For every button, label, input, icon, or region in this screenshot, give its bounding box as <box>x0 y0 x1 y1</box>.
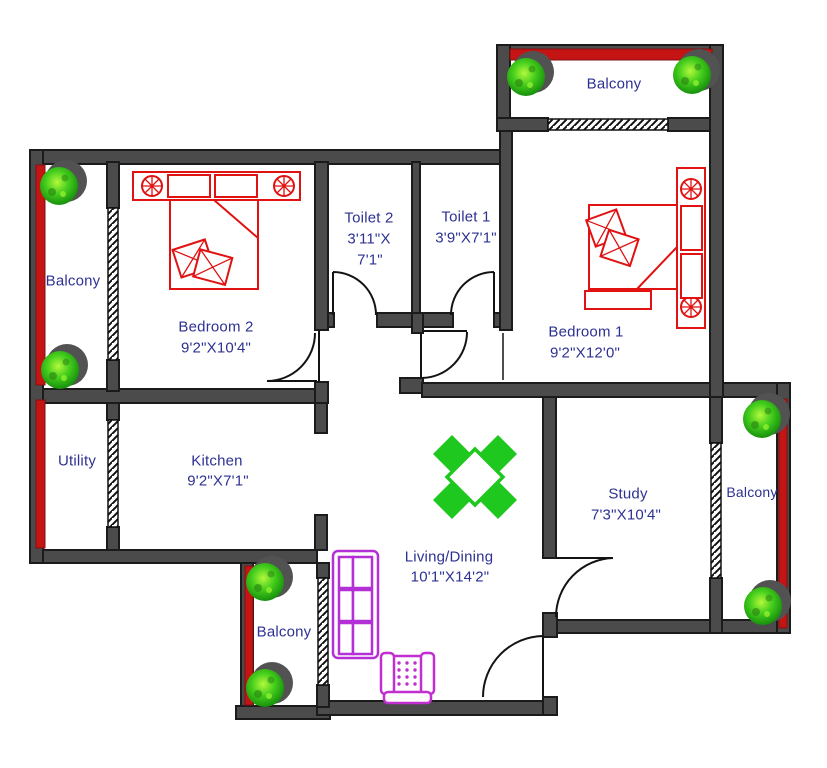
room-label-toilet2: Toilet 2 <box>344 211 393 226</box>
room-label-bedroom2: Bedroom 2 <box>178 320 253 335</box>
room-dims-toilet2-line1: 3'11"X <box>347 232 390 247</box>
room-label-bedroom1: Bedroom 1 <box>548 325 623 340</box>
door-toilet1 <box>451 272 494 315</box>
room-dims-bedroom1: 9'2"X12'0" <box>550 346 620 361</box>
room-dims-toilet2-line2: 7'1" <box>357 253 383 268</box>
window-right-balcony <box>711 443 721 578</box>
armchair-icon <box>381 653 434 703</box>
room-label-balcony-left: Balcony <box>46 274 101 289</box>
door-bedroom2 <box>267 330 319 382</box>
door-toilet2 <box>333 272 376 315</box>
room-dims-study: 7'3"X10'4" <box>591 508 661 523</box>
room-label-balcony-top: Balcony <box>587 77 642 92</box>
wardrobe-icon <box>585 291 651 309</box>
floor-plan-drawing <box>0 0 827 768</box>
room-label-living-dining: Living/Dining <box>405 550 493 565</box>
window-left-balcony <box>108 208 118 360</box>
window-top-balcony <box>548 119 668 130</box>
window-bottom-balcony <box>318 578 328 685</box>
room-dims-bedroom2: 9'2"X10'4" <box>181 341 251 356</box>
room-dims-kitchen: 9'2"X7'1" <box>187 474 249 489</box>
room-label-study: Study <box>608 487 647 502</box>
door-entrance <box>483 636 543 697</box>
room-dims-toilet1: 3'9"X7'1" <box>435 231 497 246</box>
room-label-kitchen: Kitchen <box>191 454 242 469</box>
room-label-toilet1: Toilet 1 <box>441 210 490 225</box>
room-dims-living-dining: 10'1"X14'2" <box>411 570 490 585</box>
door-passage <box>421 331 467 378</box>
tree-icon <box>40 160 87 205</box>
room-label-balcony-right: Balcony <box>726 485 777 499</box>
dining-table-icon <box>433 435 517 519</box>
door-study <box>556 558 613 617</box>
floor-plan: Balcony Balcony Bedroom 2 9'2"X10'4" Toi… <box>0 0 827 768</box>
tree-icon <box>41 344 88 389</box>
bed-icon-bedroom2 <box>133 172 300 289</box>
window-utility <box>108 420 118 527</box>
room-label-utility: Utility <box>58 454 96 469</box>
room-label-balcony-bottom: Balcony <box>257 625 312 640</box>
sofa-icon <box>333 551 378 658</box>
walls <box>30 45 790 719</box>
